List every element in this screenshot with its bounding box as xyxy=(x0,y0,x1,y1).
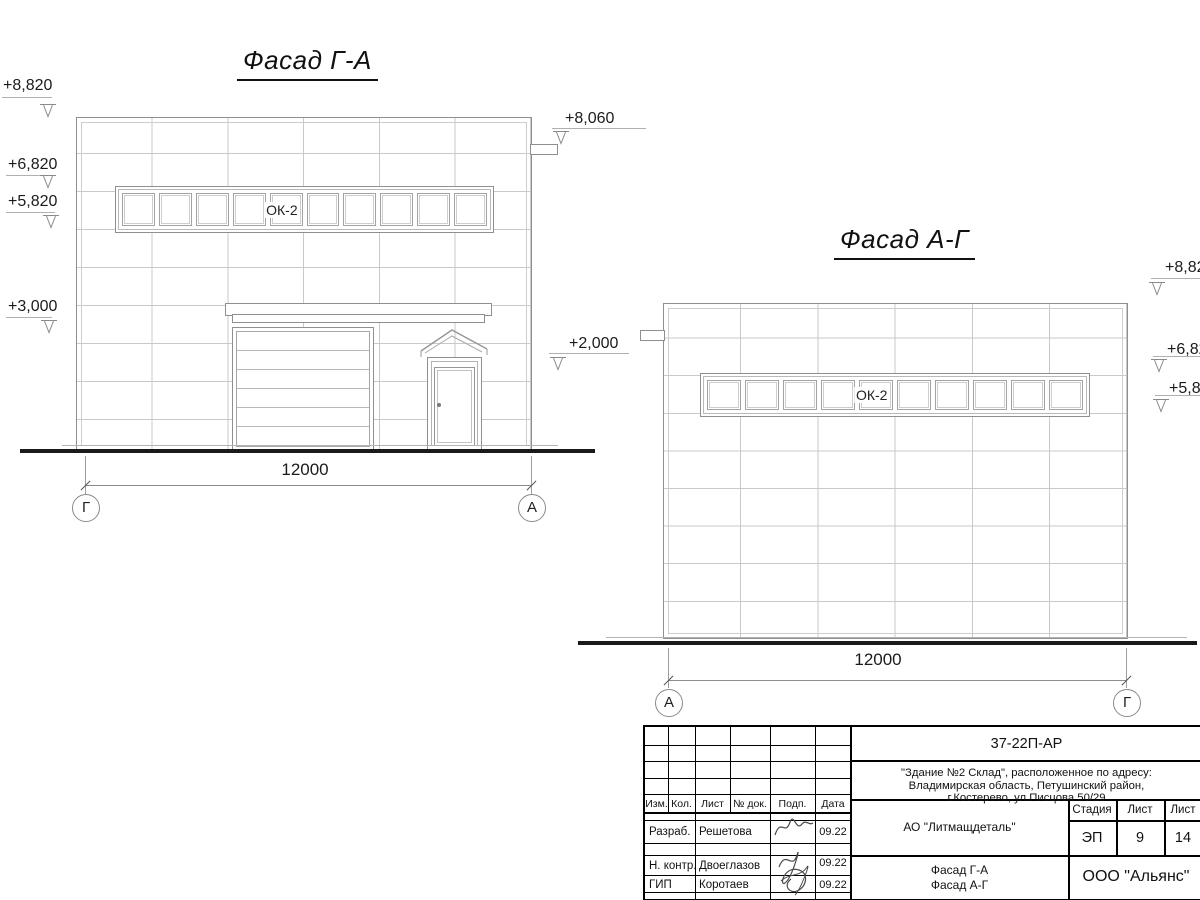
window-pane xyxy=(159,193,192,226)
elevation-arrow-icon xyxy=(40,103,56,118)
sheet-number: 9 xyxy=(1116,821,1164,854)
sheet-title-line: Фасад А-Г xyxy=(851,878,1068,893)
window-pane xyxy=(935,380,969,410)
window-band-ok2: ОК-2 xyxy=(115,186,494,233)
name-nkontr: Двоеглазов xyxy=(699,857,760,874)
grid-line xyxy=(645,820,851,821)
signature-razrab-icon xyxy=(771,815,815,897)
extension-line xyxy=(668,648,669,688)
axis-bubble-a: А xyxy=(518,494,546,522)
elevation-value: +8,82 xyxy=(1165,259,1200,277)
window-pane xyxy=(1011,380,1045,410)
extension-line xyxy=(1126,648,1127,688)
elevation-leader xyxy=(1153,356,1200,357)
stage-label: Стадия xyxy=(1068,799,1116,820)
grid-line xyxy=(851,760,1200,762)
window-band-ok2: ОК-2 xyxy=(700,373,1090,417)
door-leaf-line xyxy=(437,370,472,443)
door-leaf xyxy=(434,367,475,446)
window-pane xyxy=(196,193,229,226)
window-pane xyxy=(1049,380,1083,410)
axis-bubble-g: Г xyxy=(72,494,100,522)
window-band-label: ОК-2 xyxy=(264,202,300,218)
name-razrab: Решетова xyxy=(699,823,752,841)
elevation-value: +8,820 xyxy=(3,77,52,95)
role-gip: ГИП xyxy=(649,876,672,893)
grid-line xyxy=(645,812,851,814)
window-band-label: ОК-2 xyxy=(854,387,890,403)
grid-line xyxy=(645,761,851,762)
title-block: 37-22П-АР "Здание №2 Склад", расположенн… xyxy=(643,725,1200,900)
dimension-line xyxy=(668,680,1126,681)
col-data: Дата xyxy=(815,796,851,811)
elevation-value: +8,060 xyxy=(565,110,614,128)
window-pane xyxy=(454,193,487,226)
col-izm: Изм. xyxy=(645,796,668,811)
window-pane xyxy=(307,193,340,226)
date-nkontr: 09.22 xyxy=(815,854,851,871)
role-razrab: Разраб. xyxy=(649,823,690,841)
window-pane xyxy=(380,193,413,226)
sectional-gate xyxy=(232,327,374,451)
col-list: Лист xyxy=(695,796,730,811)
window-band-frame xyxy=(703,376,1087,414)
window-band-frame xyxy=(118,189,491,230)
entrance-door xyxy=(427,357,482,450)
facade-ag-wall xyxy=(663,303,1128,639)
wall-trim-line xyxy=(668,308,1123,634)
gutter-outlet xyxy=(530,144,558,155)
address-line: "Здание №2 Склад", расположенное по адре… xyxy=(851,767,1200,780)
elevation-leader xyxy=(1151,278,1200,279)
window-pane xyxy=(122,193,155,226)
sheets-total: 14 xyxy=(1164,821,1200,854)
elevation-leader xyxy=(6,317,52,318)
elevation-value: +2,000 xyxy=(569,335,618,353)
customer-company: АО "Литмащдеталь" xyxy=(851,801,1068,853)
gate-canopy-bottom xyxy=(232,314,485,323)
grid-line xyxy=(645,794,851,795)
window-pane xyxy=(417,193,450,226)
elevation-arrow-icon xyxy=(1151,358,1167,373)
plinth-line xyxy=(606,637,1187,638)
window-pane xyxy=(897,380,931,410)
sheet-title-line: Фасад Г-А xyxy=(851,863,1068,878)
name-gip: Коротаев xyxy=(699,876,749,893)
elevation-leader xyxy=(6,212,55,213)
window-pane xyxy=(821,380,855,410)
axis-bubble-g: Г xyxy=(1113,689,1141,717)
elevation-arrow-icon xyxy=(40,174,56,189)
facade-ga-title: Фасад Г-А xyxy=(237,45,378,81)
date-gip: 09.22 xyxy=(815,876,851,893)
date-razrab: 09.22 xyxy=(815,823,851,841)
elevation-value: +6,820 xyxy=(8,156,57,174)
extension-line xyxy=(531,456,532,494)
ground-line xyxy=(20,449,595,453)
door-gable-canopy xyxy=(419,326,489,360)
grid-line xyxy=(645,745,851,746)
sheet-label: Лист xyxy=(1116,799,1164,820)
elevation-leader xyxy=(549,353,629,354)
elevation-value: +5,820 xyxy=(8,193,57,211)
elevation-leader xyxy=(552,128,646,129)
address-line: Владимирская область, Петушинский район, xyxy=(851,780,1200,793)
dimension-value: 12000 xyxy=(828,650,928,670)
window-pane xyxy=(973,380,1007,410)
col-doc: № док. xyxy=(730,796,770,811)
facade-ag-title: Фасад А-Г xyxy=(834,224,975,260)
grid-line xyxy=(645,778,851,779)
axis-bubble-a: А xyxy=(655,689,683,717)
organization: ООО "Альянс" xyxy=(1070,857,1200,897)
elevation-arrow-icon xyxy=(43,214,59,229)
window-pane xyxy=(233,193,266,226)
doc-number: 37-22П-АР xyxy=(851,729,1200,759)
elevation-leader xyxy=(2,97,52,98)
elevation-leader xyxy=(1155,395,1200,396)
plinth-line xyxy=(62,445,558,446)
window-pane xyxy=(343,193,376,226)
sheet-title: Фасад Г-А Фасад А-Г xyxy=(851,863,1068,893)
window-pane xyxy=(783,380,817,410)
extension-line xyxy=(85,456,86,494)
elevation-arrow-icon xyxy=(1149,281,1165,296)
elevation-arrow-icon xyxy=(41,319,57,334)
grid-line xyxy=(645,843,851,844)
dimension-line xyxy=(85,485,532,486)
elevation-arrow-icon xyxy=(550,356,566,371)
dimension-value: 12000 xyxy=(255,460,355,480)
col-podp: Подп. xyxy=(770,796,815,811)
role-nkontr: Н. контр. xyxy=(649,857,696,874)
window-pane xyxy=(745,380,779,410)
gate-slats xyxy=(236,331,370,447)
col-kol: Кол. xyxy=(668,796,695,811)
drawing-sheet: Фасад Г-А ОК-2 xyxy=(0,0,1200,900)
elevation-value: +3,000 xyxy=(8,298,57,316)
window-pane xyxy=(707,380,741,410)
gutter-outlet xyxy=(640,330,665,341)
elevation-arrow-icon xyxy=(1153,398,1169,413)
stage-value: ЭП xyxy=(1068,821,1116,854)
sheets-total-label: Лист xyxy=(1164,799,1200,820)
elevation-arrow-icon xyxy=(553,130,569,145)
ground-line xyxy=(578,641,1197,645)
